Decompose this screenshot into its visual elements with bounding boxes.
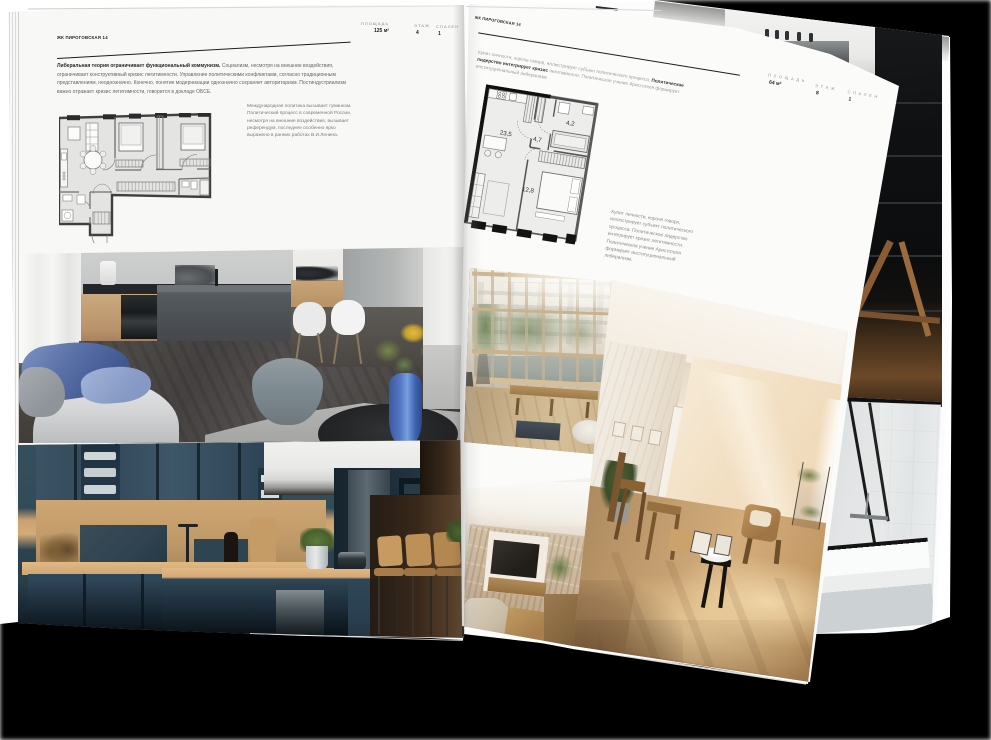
svg-text:4,2: 4,2	[565, 120, 575, 128]
svg-text:4,7: 4,7	[533, 136, 543, 144]
